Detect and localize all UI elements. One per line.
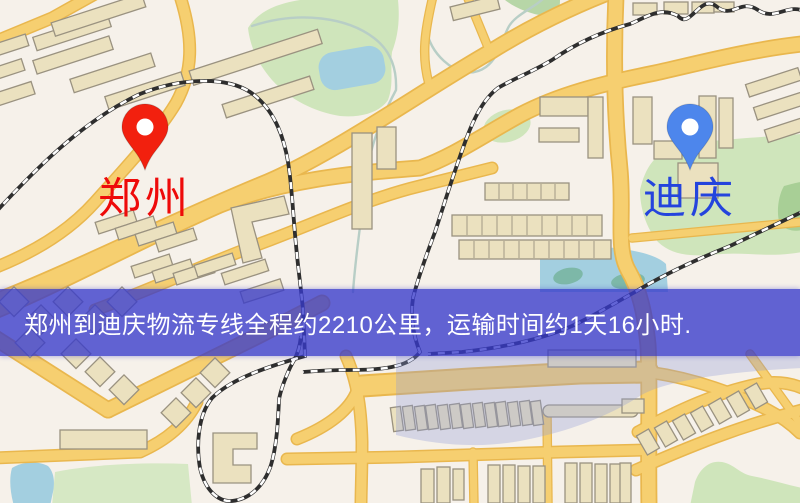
origin-pin-icon[interactable]: [119, 102, 171, 172]
destination-city-label: 迪庆: [643, 178, 737, 221]
destination-pin-icon[interactable]: [664, 102, 716, 172]
origin-city-label: 郑州: [98, 178, 192, 221]
route-info-text: 郑州到迪庆物流专线全程约2210公里，运输时间约1天16小时.: [24, 305, 692, 340]
map-screenshot: 郑州到迪庆物流专线全程约2210公里，运输时间约1天16小时. 郑州 迪庆: [0, 0, 800, 503]
map-canvas[interactable]: [0, 0, 800, 503]
route-info-banner: 郑州到迪庆物流专线全程约2210公里，运输时间约1天16小时.: [0, 289, 800, 356]
